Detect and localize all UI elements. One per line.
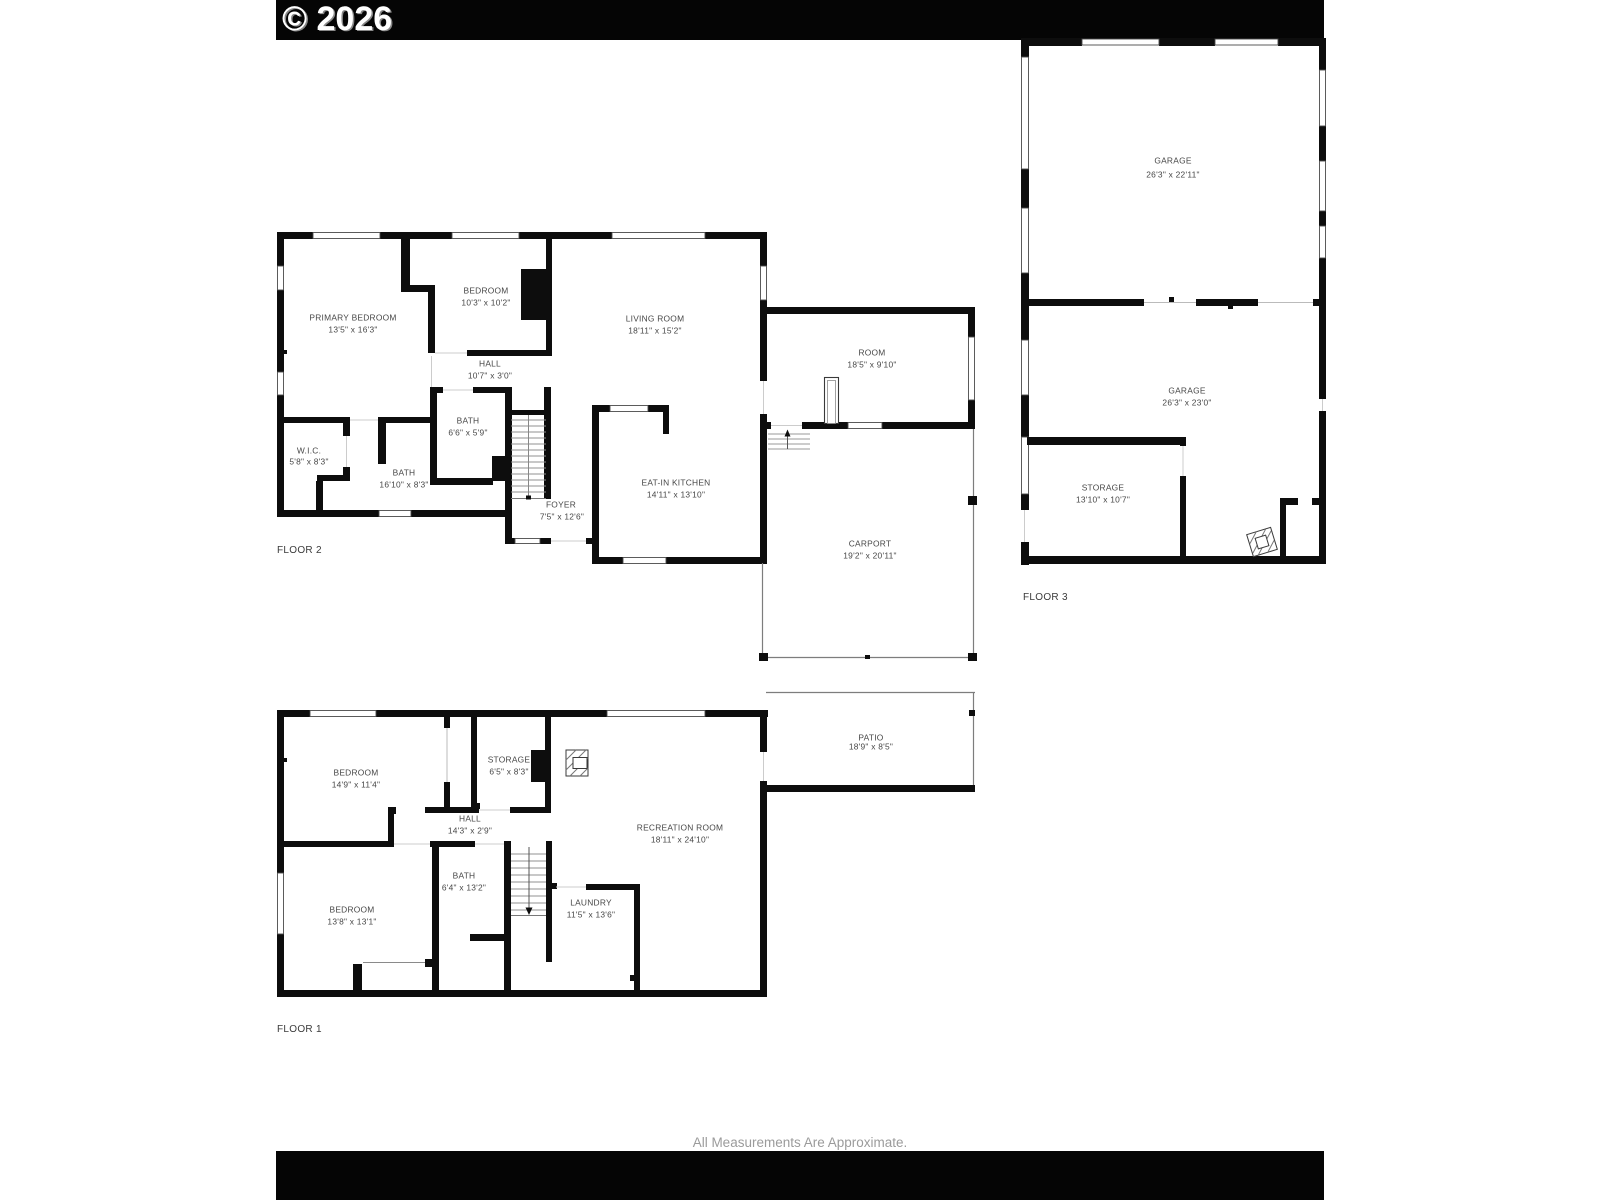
svg-text:10'3" x 10'2": 10'3" x 10'2" bbox=[461, 298, 510, 308]
svg-text:STORAGE: STORAGE bbox=[488, 755, 531, 765]
svg-text:W.I.C.: W.I.C. bbox=[297, 446, 321, 456]
svg-text:LIVING ROOM: LIVING ROOM bbox=[626, 314, 685, 324]
svg-text:18'11" x 24'10": 18'11" x 24'10" bbox=[651, 835, 709, 845]
svg-text:BATH: BATH bbox=[393, 468, 416, 478]
svg-text:6'4" x 13'2": 6'4" x 13'2" bbox=[442, 883, 486, 893]
svg-text:GARAGE: GARAGE bbox=[1168, 386, 1205, 396]
svg-text:26'3" x 22'11": 26'3" x 22'11" bbox=[1146, 170, 1199, 180]
svg-text:BATH: BATH bbox=[457, 416, 480, 426]
svg-text:LAUNDRY: LAUNDRY bbox=[570, 898, 612, 908]
svg-text:14'3" x 2'9": 14'3" x 2'9" bbox=[448, 826, 492, 836]
svg-text:14'9" x 11'4": 14'9" x 11'4" bbox=[332, 780, 381, 790]
svg-text:All Measurements Are Approxima: All Measurements Are Approximate. bbox=[693, 1135, 908, 1150]
svg-text:14'11" x 13'10": 14'11" x 13'10" bbox=[647, 490, 705, 500]
svg-text:5'8" x 8'3": 5'8" x 8'3" bbox=[289, 457, 328, 467]
svg-text:HALL: HALL bbox=[459, 814, 481, 824]
svg-text:FLOOR 1: FLOOR 1 bbox=[277, 1024, 322, 1035]
svg-text:10'7" x 3'0": 10'7" x 3'0" bbox=[468, 371, 512, 381]
svg-text:13'10" x 10'7": 13'10" x 10'7" bbox=[1076, 495, 1130, 505]
svg-text:BEDROOM: BEDROOM bbox=[329, 905, 374, 915]
svg-text:13'5" x 16'3": 13'5" x 16'3" bbox=[328, 325, 377, 335]
svg-text:18'5" x 9'10": 18'5" x 9'10" bbox=[847, 360, 896, 370]
svg-text:FOYER: FOYER bbox=[546, 500, 576, 510]
svg-text:13'8" x 13'1": 13'8" x 13'1" bbox=[327, 917, 376, 927]
svg-text:STORAGE: STORAGE bbox=[1082, 483, 1125, 493]
svg-text:16'10" x 8'3": 16'10" x 8'3" bbox=[379, 480, 428, 490]
svg-text:26'3" x 23'0": 26'3" x 23'0" bbox=[1162, 398, 1211, 408]
svg-text:GARAGE: GARAGE bbox=[1154, 156, 1191, 166]
svg-text:FLOOR 3: FLOOR 3 bbox=[1023, 592, 1068, 603]
svg-text:BEDROOM: BEDROOM bbox=[463, 286, 508, 296]
svg-text:PRIMARY BEDROOM: PRIMARY BEDROOM bbox=[309, 313, 396, 323]
svg-text:6'5" x 8'3": 6'5" x 8'3" bbox=[489, 767, 528, 777]
svg-text:HALL: HALL bbox=[479, 359, 501, 369]
svg-text:7'5" x 12'6": 7'5" x 12'6" bbox=[540, 512, 584, 522]
svg-text:© 2026: © 2026 bbox=[282, 0, 392, 38]
svg-text:CARPORT: CARPORT bbox=[849, 539, 892, 549]
svg-text:BEDROOM: BEDROOM bbox=[333, 768, 378, 778]
svg-text:BATH: BATH bbox=[453, 871, 476, 881]
svg-text:RECREATION ROOM: RECREATION ROOM bbox=[637, 823, 723, 833]
svg-text:18'9" x 8'5": 18'9" x 8'5" bbox=[849, 742, 893, 752]
svg-text:6'6" x 5'9": 6'6" x 5'9" bbox=[448, 428, 487, 438]
svg-text:EAT-IN KITCHEN: EAT-IN KITCHEN bbox=[642, 478, 711, 488]
svg-text:ROOM: ROOM bbox=[858, 348, 885, 358]
svg-text:18'11" x 15'2": 18'11" x 15'2" bbox=[628, 326, 681, 336]
svg-text:19'2" x 20'11": 19'2" x 20'11" bbox=[843, 551, 896, 561]
svg-text:11'5" x 13'6": 11'5" x 13'6" bbox=[567, 910, 616, 920]
svg-text:FLOOR 2: FLOOR 2 bbox=[277, 545, 322, 556]
